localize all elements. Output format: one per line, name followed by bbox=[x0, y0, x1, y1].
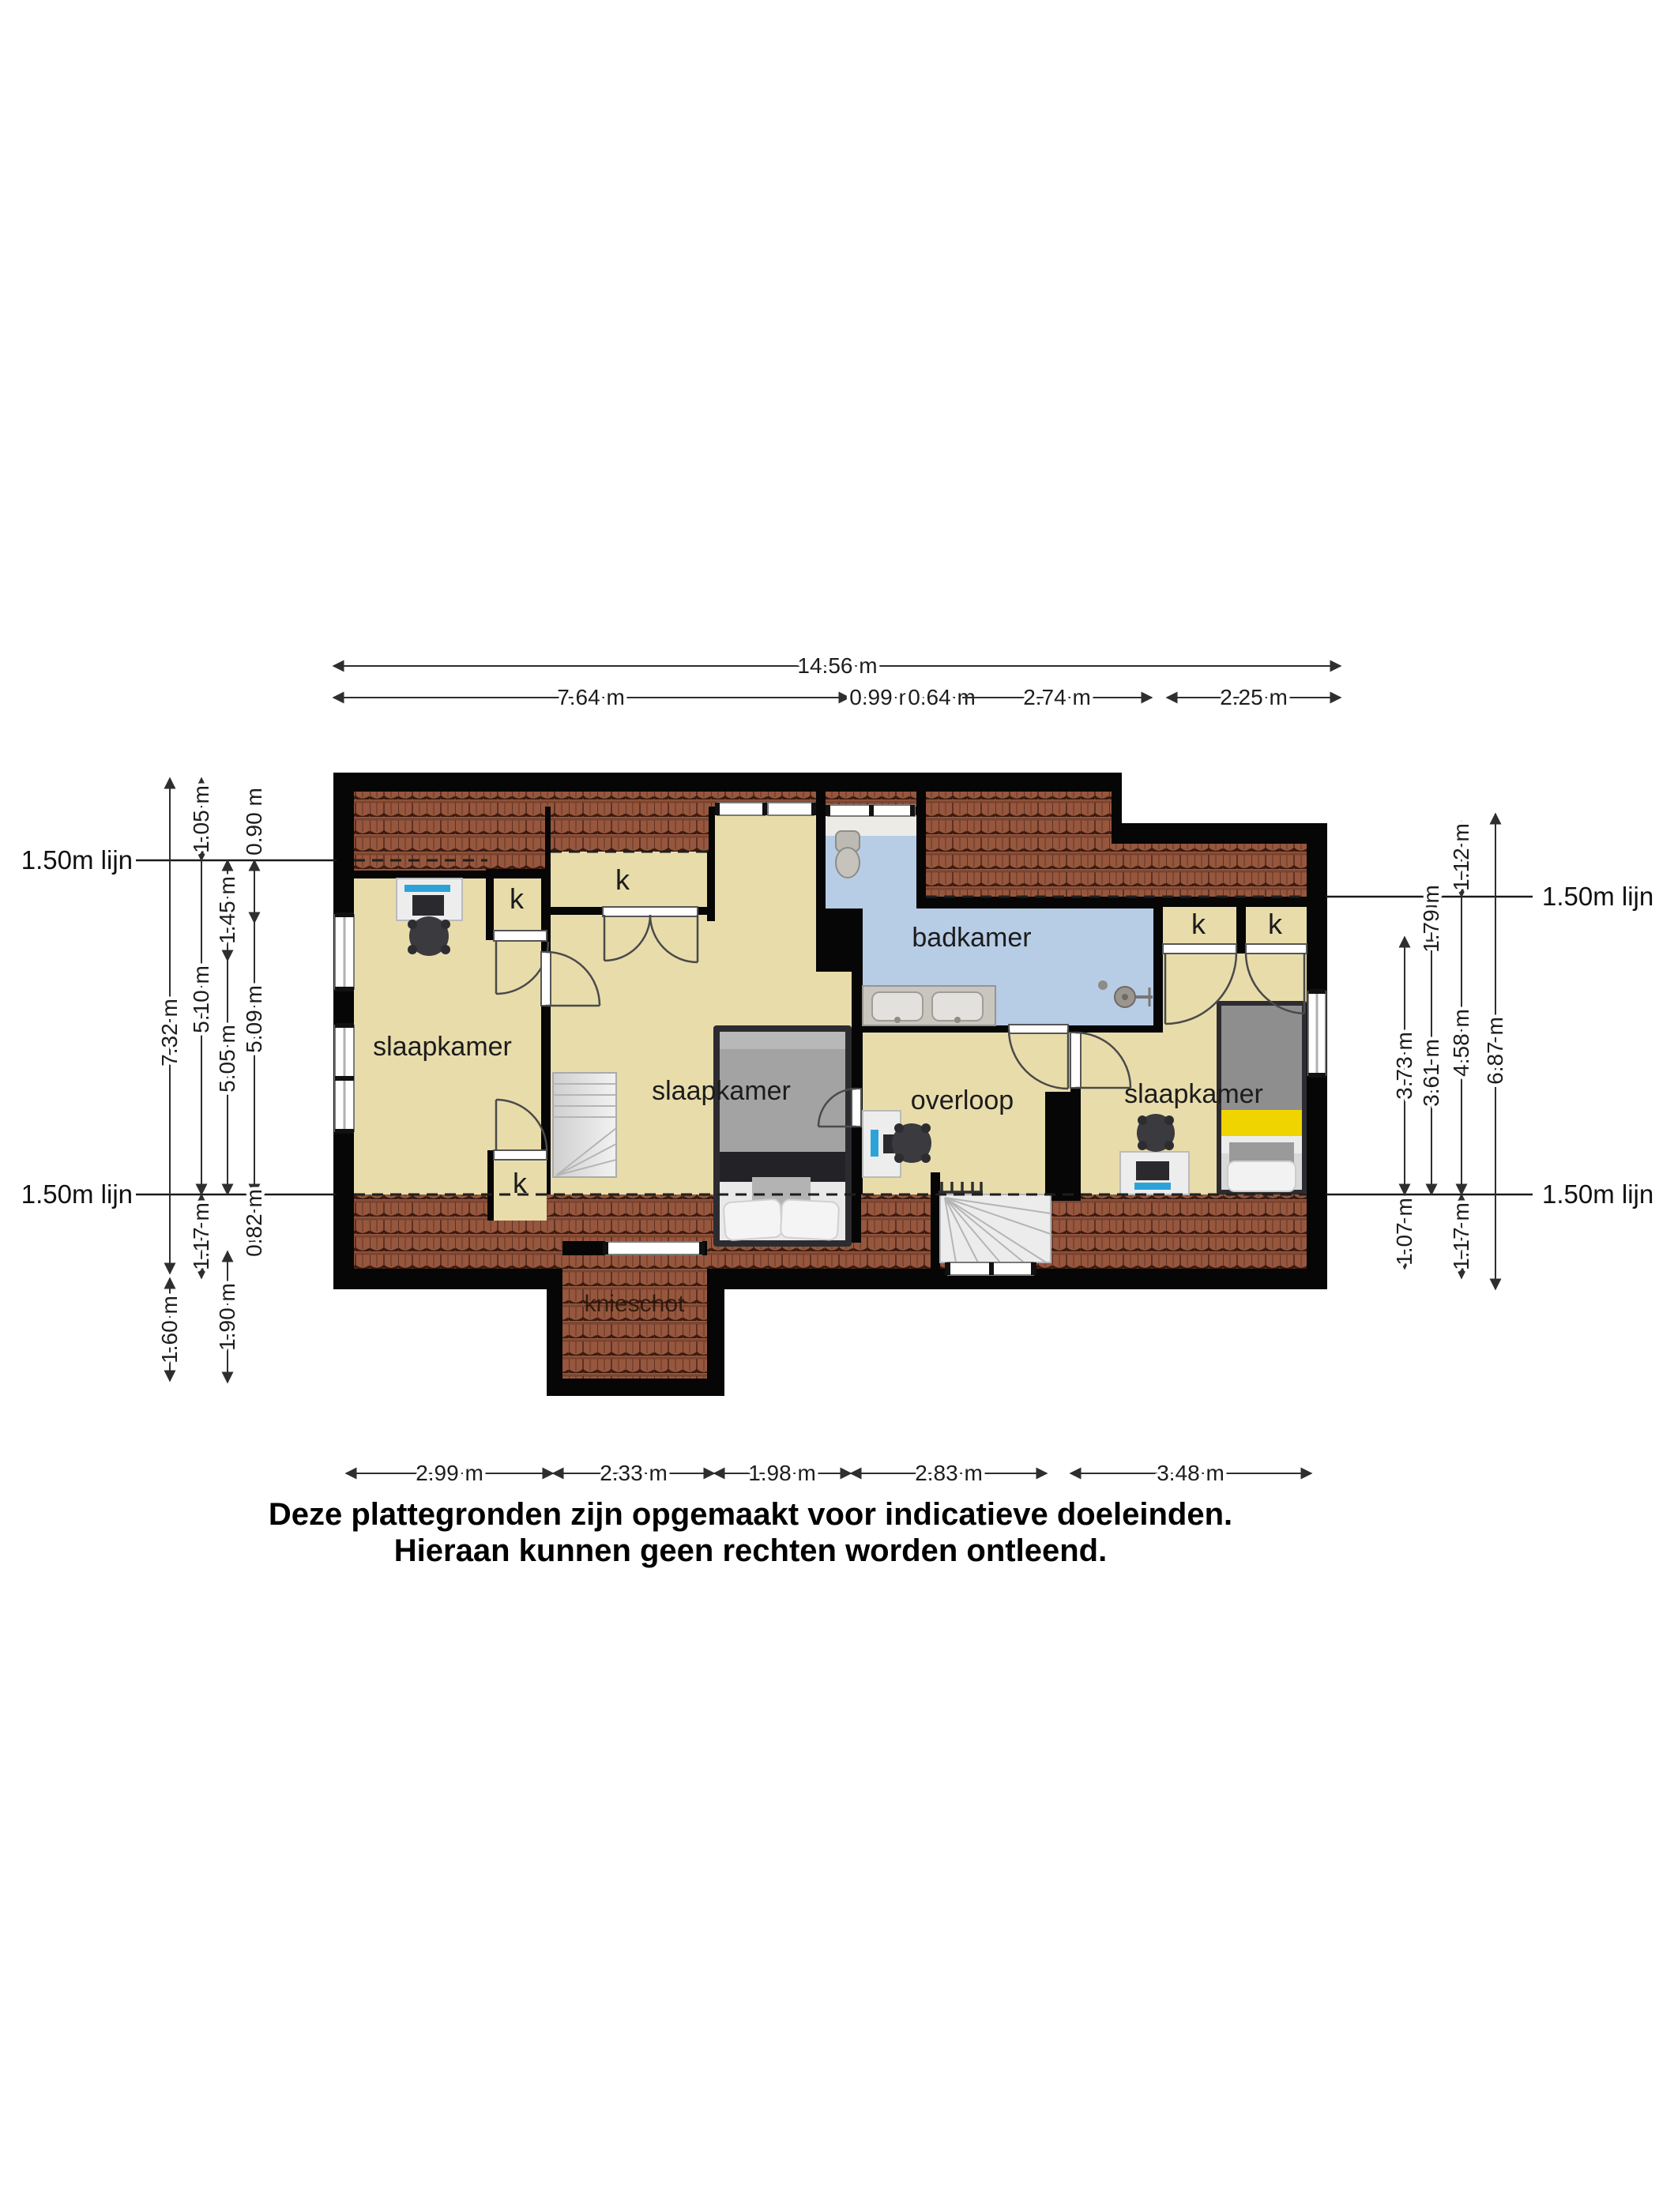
chair-bedroom-right bbox=[1137, 1114, 1175, 1152]
roof-strip-top-middle bbox=[551, 807, 709, 852]
door-closet-right-1 bbox=[1163, 944, 1236, 954]
roof-strip-top-closet bbox=[487, 807, 545, 869]
pillow bbox=[1228, 1161, 1296, 1191]
closet-label: k bbox=[615, 863, 630, 896]
wall-bedroom-left-top bbox=[354, 871, 487, 878]
dim-left-732: 7.32 m bbox=[157, 999, 182, 1066]
closet-label: k bbox=[1268, 908, 1283, 940]
door-bedroom-right bbox=[1070, 1033, 1081, 1088]
dim-bottom-seg4: 2.83 m bbox=[915, 1461, 983, 1485]
dimensions-top: 14.56 m 7.64 m 0.99 m 0.64 m 2.74 m 2.25… bbox=[333, 653, 1341, 709]
dimensions-left: 7.32 m 1.05 m 0.90 m 1.45 m 5.10 m 5.05 … bbox=[157, 778, 266, 1382]
dim-left-082: 0.82 m bbox=[242, 1189, 266, 1257]
dim-top-seg2: 0.99 m bbox=[849, 685, 917, 709]
wall-closet-middle-right bbox=[707, 852, 715, 921]
dim-left-509: 5.09 m bbox=[242, 985, 266, 1053]
dim-right-112: 1.12 m bbox=[1449, 823, 1473, 891]
disclaimer: Deze plattegronden zijn opgemaakt voor i… bbox=[269, 1497, 1232, 1568]
dim-left-090: 0.90 m bbox=[242, 788, 266, 856]
window-bathroom bbox=[826, 805, 915, 816]
sink-basin-left bbox=[872, 992, 923, 1021]
dim-left-510: 5.10 m bbox=[189, 965, 213, 1033]
line150-label-left-top: 1.50m lijn bbox=[21, 845, 133, 875]
dim-bottom-seg3: 1.98 m bbox=[748, 1461, 816, 1485]
dim-right-373: 3.73 m bbox=[1392, 1032, 1416, 1100]
dim-right-107: 1.07 m bbox=[1392, 1198, 1416, 1266]
room-label-bedroom-right: slaapkamer bbox=[1124, 1079, 1263, 1109]
room-label-landing: overloop bbox=[911, 1085, 1014, 1115]
window-left-upper bbox=[335, 912, 354, 991]
wall-bathroom-right bbox=[1153, 897, 1163, 1033]
door-closet-bottom bbox=[494, 1150, 547, 1160]
dim-top-seg4: 2.74 m bbox=[1023, 685, 1091, 709]
wall-closet-left-topband bbox=[487, 869, 545, 878]
dim-right-458: 4.58 m bbox=[1449, 1009, 1473, 1077]
wall-closet-right-divider bbox=[1236, 907, 1246, 954]
dim-left-145: 1.45 m bbox=[215, 876, 239, 944]
room-label-bathroom: badkamer bbox=[912, 923, 1031, 953]
wall-bathroom-nook-right bbox=[916, 792, 926, 908]
wall-closet-bottom-left bbox=[487, 1150, 494, 1221]
door-bedroom-left bbox=[541, 952, 551, 1006]
dim-left-117: 1.17 m bbox=[189, 1202, 213, 1270]
closet-label: k bbox=[1191, 908, 1206, 940]
dim-bottom-seg5: 3.48 m bbox=[1157, 1461, 1224, 1485]
wall-bathroom-step bbox=[816, 962, 861, 972]
door-bedroom-middle bbox=[852, 1089, 861, 1127]
dim-left-160: 1.60 m bbox=[157, 1296, 182, 1364]
faucet-icon bbox=[954, 1017, 961, 1023]
window-kneewall bbox=[603, 1242, 705, 1255]
dim-right-179: 1.79 m bbox=[1419, 885, 1443, 953]
stairs-middle-bedroom bbox=[553, 1073, 616, 1177]
floorplan-canvas: 1.50m lijn 1.50m lijn 1.50m lijn 1.50m l… bbox=[0, 0, 1659, 2212]
wall-shaft bbox=[1045, 1092, 1081, 1201]
dim-left-190: 1.90 m bbox=[215, 1283, 239, 1351]
disclaimer-line2: Hieraan kunnen geen rechten worden ontle… bbox=[394, 1533, 1107, 1568]
wall-closet-left-side bbox=[486, 869, 494, 940]
wall-stair-side bbox=[931, 1172, 940, 1269]
dim-left-105: 1.05 m bbox=[189, 785, 213, 853]
stairs-main bbox=[940, 1194, 1051, 1262]
door-bathroom bbox=[1009, 1025, 1068, 1033]
dim-left-505: 5.05 m bbox=[215, 1025, 239, 1093]
room-label-bedroom-middle: slaapkamer bbox=[652, 1076, 791, 1106]
dim-right-687: 6.87 m bbox=[1483, 1017, 1507, 1085]
room-label-bedroom-left: slaapkamer bbox=[373, 1032, 512, 1062]
pillow bbox=[723, 1199, 782, 1241]
dimensions-right: 1.12 m 1.79 m 3.73 m 4.58 m 6.87 m 3.61 … bbox=[1392, 814, 1507, 1289]
line150-label-right-bottom: 1.50m lijn bbox=[1542, 1179, 1653, 1209]
monitor-icon bbox=[871, 1130, 878, 1157]
desk-bedroom-right bbox=[1120, 1152, 1189, 1194]
dim-top-seg5: 2.25 m bbox=[1220, 685, 1288, 709]
dim-top-total: 14.56 m bbox=[797, 653, 877, 678]
closet-middle-floor bbox=[551, 852, 709, 907]
dim-bottom-seg1: 2.99 m bbox=[416, 1461, 483, 1485]
window-left-lower bbox=[335, 1023, 354, 1134]
sink-basin-right bbox=[932, 992, 983, 1021]
chair-bedroom-left bbox=[408, 916, 450, 956]
keyboard-icon bbox=[412, 895, 444, 916]
window-right bbox=[1308, 989, 1326, 1078]
roof-kneewall bbox=[562, 1269, 707, 1379]
closet-label: k bbox=[513, 1167, 528, 1199]
faucet-icon bbox=[894, 1017, 901, 1023]
pillow bbox=[781, 1199, 839, 1240]
bed-double bbox=[713, 1025, 852, 1247]
window-dormer-1 bbox=[715, 803, 767, 815]
wall-right-inner-top bbox=[926, 897, 1307, 907]
toilet bbox=[836, 831, 860, 878]
disclaimer-line1: Deze plattegronden zijn opgemaakt voor i… bbox=[269, 1497, 1232, 1532]
bed-yellow-stripe bbox=[1221, 1110, 1302, 1136]
monitor-icon bbox=[404, 885, 450, 892]
dim-top-seg1: 7.64 m bbox=[557, 685, 625, 709]
desk-bedroom-left bbox=[397, 878, 462, 920]
room-label-kneewall: knieschot bbox=[585, 1291, 685, 1317]
closet-label: k bbox=[510, 882, 525, 915]
door-closet-right-2 bbox=[1246, 944, 1307, 954]
door-closet-left bbox=[494, 931, 547, 941]
window-dormer-2 bbox=[768, 803, 816, 815]
dim-right-361: 3.61 m bbox=[1419, 1039, 1443, 1107]
line150-label-left-bottom: 1.50m lijn bbox=[21, 1179, 133, 1209]
wall-bathroom-nook-left bbox=[816, 792, 826, 972]
sink-counter bbox=[863, 986, 995, 1025]
chair-landing bbox=[892, 1123, 931, 1163]
window-stairs bbox=[945, 1262, 1036, 1275]
dimensions-bottom: 2.99 m 2.33 m 1.98 m 2.83 m 3.48 m bbox=[346, 1461, 1311, 1485]
dim-right-117: 1.17 m bbox=[1449, 1202, 1473, 1270]
wall-left-middle-divider bbox=[541, 871, 551, 1150]
dim-bottom-seg2: 2.33 m bbox=[600, 1461, 668, 1485]
monitor-icon bbox=[1134, 1183, 1171, 1190]
keyboard-icon bbox=[1136, 1161, 1169, 1180]
line150-label-right-top: 1.50m lijn bbox=[1542, 882, 1653, 911]
